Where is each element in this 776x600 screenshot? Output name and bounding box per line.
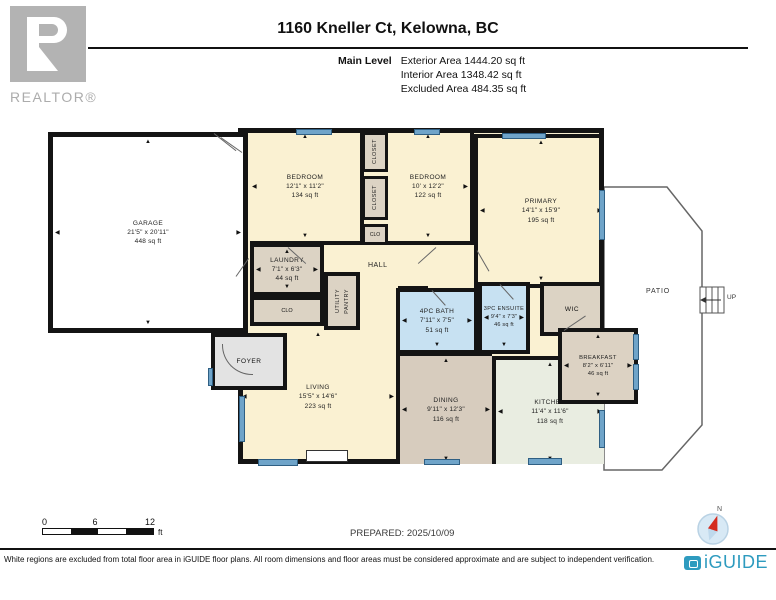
window: [633, 364, 639, 390]
window: [424, 459, 460, 465]
dimension-arrow: ▶: [463, 184, 468, 190]
exterior-area: Exterior Area 1444.20 sq ft: [401, 55, 527, 67]
room-area: 44 sq ft: [270, 274, 304, 283]
iguide-logo: iGUIDE: [684, 552, 768, 573]
window: [208, 368, 213, 386]
room-area: 46 sq ft: [484, 322, 524, 330]
room-dims: 14'1" x 15'9": [522, 206, 560, 215]
dimension-arrow: ▼: [284, 284, 290, 290]
dimension-arrow: ▶: [236, 230, 241, 236]
room-name: BEDROOM: [286, 173, 324, 182]
room-dims: 11'4" x 11'6": [531, 407, 568, 416]
dimension-arrow: ▼: [501, 342, 507, 348]
stairs-up-label: UP: [727, 294, 736, 301]
room-clo: CLO: [362, 224, 388, 245]
dimension-arrow: ▲: [315, 332, 321, 338]
floorplan-page: REALTOR® 1160 Kneller Ct, Kelowna, BC Ma…: [0, 0, 776, 600]
room-name: CLO: [370, 232, 380, 238]
room-name: CLOSET: [372, 185, 378, 210]
room-bedroom-2: BEDROOM 10' x 12'2" 122 sq ft ▲▼▶: [386, 132, 474, 245]
dimension-arrow: ◀: [402, 318, 407, 324]
dimension-arrow: ◀: [256, 267, 261, 273]
window: [633, 334, 639, 360]
dimension-arrow: ◀: [480, 208, 485, 214]
dimension-arrow: ▼: [434, 342, 440, 348]
window: [296, 129, 332, 135]
dimension-arrow: ◀: [498, 409, 503, 415]
excluded-area: Excluded Area 484.35 sq ft: [401, 83, 527, 95]
room-hall: HALL: [368, 262, 388, 269]
room-bedroom-1: BEDROOM 12'1" x 11'2" 134 sq ft ▲▼◀: [250, 132, 364, 245]
dimension-arrow: ▶: [627, 363, 632, 369]
room-name: BREAKFAST: [579, 354, 617, 362]
patio-outline: [595, 160, 776, 490]
window: [599, 190, 605, 240]
dimension-arrow: ▼: [302, 233, 308, 239]
room-dims: 7'11" x 7'5": [420, 316, 455, 325]
iguide-camera-icon: [684, 556, 701, 570]
scale-bar: 0 6 12 ft: [42, 517, 182, 535]
room-patio: PATIO: [628, 288, 688, 295]
room-name: PRIMARY: [522, 197, 560, 206]
dimension-arrow: ◀: [564, 363, 569, 369]
room-primary: PRIMARY 14'1" x 15'9" 195 sq ft ▲▼▶◀: [474, 134, 604, 288]
iguide-wordmark: iGUIDE: [704, 552, 768, 573]
page-title: 1160 Kneller Ct, Kelowna, BC: [0, 20, 776, 38]
room-area: 223 sq ft: [299, 402, 337, 411]
prepared-date: PREPARED: 2025/10/09: [350, 528, 454, 539]
room-closet-top: CLOSET: [362, 132, 388, 172]
dimension-arrow: ▶: [467, 318, 472, 324]
room-name: LIVING: [299, 383, 337, 392]
realtor-wordmark: REALTOR®: [10, 89, 96, 105]
scale-tick-12: 12: [145, 517, 155, 527]
interior-area: Interior Area 1348.42 sq ft: [401, 69, 527, 81]
room-dims: 9'11" x 12'3": [427, 405, 465, 414]
room-area: 122 sq ft: [410, 191, 446, 200]
room-name: GARAGE: [127, 219, 169, 228]
dimension-arrow: ▲: [595, 334, 601, 340]
dimension-arrow: ◀: [55, 230, 60, 236]
dimension-arrow: ▶: [313, 267, 318, 273]
room-name: WIC: [565, 306, 579, 313]
room-area: 134 sq ft: [286, 191, 324, 200]
dimension-arrow: ▼: [425, 233, 431, 239]
dimension-arrow: ◀: [402, 407, 407, 413]
footer-divider: [0, 548, 776, 550]
realtor-logo-icon: [10, 6, 86, 82]
room-dims: 8'2" x 6'11": [579, 362, 617, 370]
room-dims: 12'1" x 11'2": [286, 182, 324, 191]
room-area: 195 sq ft: [522, 216, 560, 225]
window: [414, 129, 440, 135]
room-garage: GARAGE 21'5" x 20'11" 448 sq ft ▲▼▶◀: [48, 132, 248, 333]
room-name: 3PC ENSUITE: [484, 306, 524, 314]
dimension-arrow: ▶: [519, 315, 524, 321]
window: [258, 459, 298, 466]
room-name: CLO: [281, 308, 292, 314]
room-name: CLOSET: [372, 139, 378, 164]
footer-disclaimer: White regions are excluded from total fl…: [4, 555, 666, 564]
level-label: Main Level: [338, 55, 392, 97]
window: [528, 458, 562, 465]
fireplace: [306, 450, 348, 462]
room-name: DINING: [427, 396, 465, 405]
room-name: 4PC BATH: [420, 307, 455, 316]
area-stats: Main Level Exterior Area 1444.20 sq ft I…: [338, 55, 526, 97]
room-closet-mid: CLOSET: [362, 176, 388, 220]
room-dims: 7'1" x 6'3": [270, 265, 304, 274]
stairs-up-icon: [700, 287, 724, 313]
dimension-arrow: ▲: [538, 140, 544, 146]
scale-bar-segments: [42, 528, 154, 535]
room-clo-laundry: CLO: [250, 296, 324, 326]
scale-tick-6: 6: [92, 517, 97, 527]
room-dims: 21'5" x 20'11": [127, 228, 169, 237]
room-name-utility: UTILITY: [335, 289, 341, 313]
dimension-arrow: ▼: [595, 392, 601, 398]
room-name-pantry: PANTRY: [344, 289, 350, 314]
dimension-arrow: ◀: [484, 315, 489, 321]
room-dims: 9'4" x 7'3": [484, 314, 524, 322]
room-utility-pantry: UTILITY PANTRY: [324, 272, 360, 330]
dimension-arrow: ▶: [485, 407, 490, 413]
dimension-arrow: ▲: [145, 139, 151, 145]
window: [502, 133, 546, 139]
dimension-arrow: ▼: [145, 320, 151, 326]
room-breakfast: BREAKFAST 8'2" x 6'11" 46 sq ft ▲▼▶◀: [558, 328, 638, 404]
room-dining: DINING 9'11" x 12'3" 116 sq ft ▲▼▶◀: [396, 352, 492, 464]
scale-tick-0: 0: [42, 517, 47, 527]
dimension-arrow: ▲: [547, 362, 553, 368]
room-area: 448 sq ft: [127, 237, 169, 246]
area-values: Exterior Area 1444.20 sq ft Interior Are…: [401, 55, 527, 97]
window: [239, 396, 245, 442]
room-area: 46 sq ft: [579, 370, 617, 378]
room-dims: 15'5" x 14'6": [299, 392, 337, 401]
room-dims: 10' x 12'2": [410, 182, 446, 191]
room-3pc-ensuite: 3PC ENSUITE 9'4" x 7'3" 46 sq ft ▼▶◀: [478, 282, 530, 354]
dimension-arrow: ▶: [389, 394, 394, 400]
room-area: 118 sq ft: [531, 417, 568, 426]
dimension-arrow: ◀: [252, 184, 257, 190]
room-laundry: LAUNDRY 7'1" x 6'3" 44 sq ft ▲▼▶◀: [250, 243, 324, 296]
window: [599, 410, 605, 448]
scale-unit: ft: [158, 528, 162, 537]
compass-icon: N: [692, 502, 736, 553]
room-area: 116 sq ft: [427, 415, 465, 424]
room-area: 51 sq ft: [420, 326, 455, 335]
compass-north-label: N: [717, 506, 722, 513]
header-divider: [88, 47, 748, 49]
room-name: BEDROOM: [410, 173, 446, 182]
dimension-arrow: ▲: [443, 358, 449, 364]
